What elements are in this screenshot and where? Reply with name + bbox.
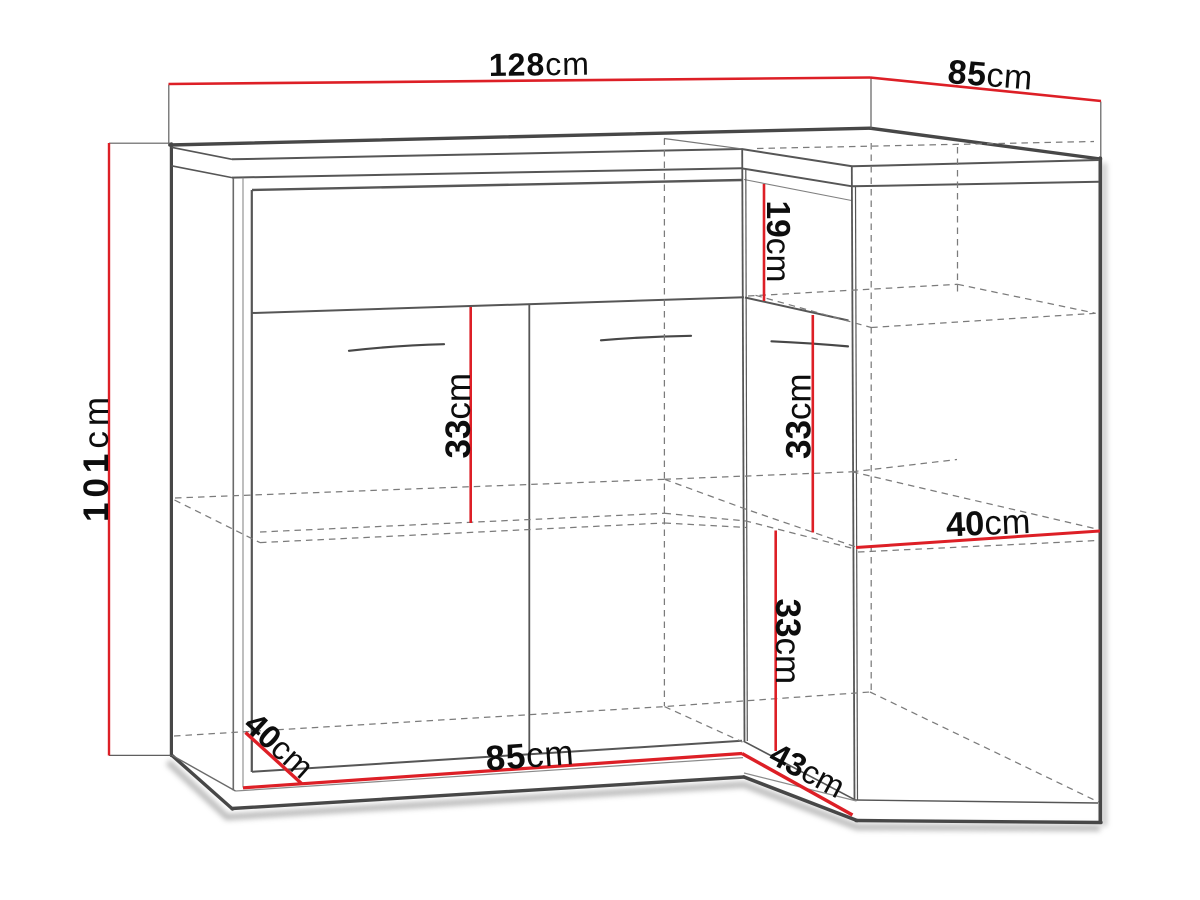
svg-text:40cm: 40cm: [945, 503, 1031, 545]
svg-text:33cm: 33cm: [768, 599, 807, 685]
svg-text:33cm: 33cm: [779, 373, 818, 459]
svg-text:85cm: 85cm: [484, 733, 575, 778]
svg-text:85cm: 85cm: [946, 53, 1034, 98]
svg-text:19cm: 19cm: [759, 201, 796, 283]
svg-text:40cm: 40cm: [237, 705, 320, 785]
svg-text:128cm: 128cm: [489, 46, 591, 83]
svg-text:33cm: 33cm: [439, 373, 478, 459]
svg-text:101cm: 101cm: [77, 392, 116, 522]
